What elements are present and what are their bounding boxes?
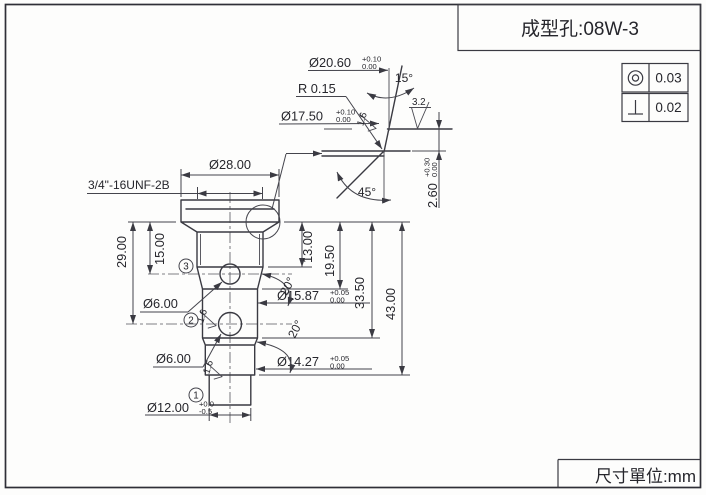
hole-top-dia-text: Ø6.00 — [143, 296, 178, 311]
dim-text-33-5: 33.50 — [352, 277, 367, 309]
taper-angle-text: 15° — [395, 71, 413, 85]
bore-lower-text: Ø14.27 — [277, 354, 319, 369]
gdt-frames: 0.03 0.02 — [622, 64, 688, 122]
detail-reference-lines — [324, 68, 446, 203]
finish-mark-upper: 1.6 — [194, 308, 219, 331]
dim-stem: Ø12.00 +0.0 -0.5 — [145, 400, 251, 422]
part-title: 成型孔:08W-3 — [521, 18, 639, 40]
concentricity-value: 0.03 — [655, 71, 681, 86]
bore-lower-tol-minus: 0.00 — [330, 362, 345, 371]
mouth-dia-text: Ø20.60 — [309, 55, 351, 70]
dim-text-15: 15.00 — [152, 233, 167, 265]
hole-bottom-dia-text: Ø6.00 — [156, 351, 191, 366]
callout-chamfer-angle: 45° — [337, 172, 391, 200]
unit-note: 尺寸單位:mm — [595, 467, 696, 486]
perpendicularity-icon — [628, 100, 643, 114]
fillet-radius-text: R 0.15 — [298, 81, 336, 96]
dim-text-13: 13.00 — [300, 231, 315, 263]
dim-thread: 3/4"-16UNF-2B — [87, 178, 263, 199]
concentricity-icon — [628, 71, 642, 85]
finish-mark-lower: 1.6 — [200, 359, 225, 382]
stem-tol-minus: -0.5 — [199, 407, 212, 416]
callout-hole-top: Ø6.00 — [140, 282, 222, 312]
dim-depth: 2.60 +0.30 0.00 — [423, 112, 441, 208]
callout-mouth-dia: Ø20.60 +0.10 0.00 — [308, 55, 388, 72]
bore-dia-text: Ø17.50 — [281, 109, 323, 124]
footer: 尺寸單位:mm — [558, 460, 701, 488]
finish-upper-value: 1.6 — [195, 308, 210, 325]
title-block: 成型孔:08W-3 — [458, 5, 701, 51]
callout-bore-lower: Ø14.27 +0.05 0.00 — [256, 354, 372, 371]
bore-dia-tol-minus: 0.00 — [336, 115, 351, 124]
chamfer-angle-text: 45° — [358, 185, 376, 199]
finish-mark-wall: 1.6 — [354, 111, 379, 134]
balloon-1: 1 — [189, 388, 203, 402]
bore-upper-tol-minus: 0.00 — [330, 296, 345, 305]
concentricity-icon — [632, 75, 638, 81]
depth-value: 2.60 — [425, 183, 440, 208]
dim-text-19-5: 19.50 — [322, 245, 337, 277]
finish-face-value: 3.2 — [412, 97, 426, 108]
leader-line — [188, 282, 222, 312]
thread-spec-text: 3/4"-16UNF-2B — [88, 178, 170, 192]
angle-arc — [367, 88, 414, 98]
stem-dia-text: Ø12.00 — [147, 400, 189, 415]
depth-text-group: 2.60 +0.30 0.00 — [423, 158, 441, 208]
detail-outline — [322, 66, 452, 198]
callout-taper-angle: 15° — [367, 71, 414, 98]
dim-text-29: 29.00 — [114, 236, 129, 268]
finish-lower-value: 1.6 — [201, 359, 216, 376]
depth-tol-minus: 0.00 — [430, 162, 439, 177]
finish-mark-face: 3.2 — [409, 97, 431, 129]
dim-flange-dia: Ø28.00 — [181, 157, 279, 197]
dim-text-flange-dia: Ø28.00 — [209, 157, 251, 172]
perpendicularity-value: 0.02 — [655, 100, 681, 115]
balloon-3-number: 3 — [183, 262, 189, 273]
balloon-3: 3 — [179, 259, 193, 273]
balloon-1-number: 1 — [193, 391, 198, 402]
dim-text-43: 43.00 — [383, 288, 398, 320]
detail-view: Ø20.60 +0.10 0.00 R 0.15 Ø17.50 +0.10 0.… — [279, 55, 452, 209]
chamfer-lower-angle: 20° — [285, 318, 306, 341]
engineering-drawing: 成型孔:08W-3 0.03 0.02 — [0, 0, 706, 495]
sheet-border — [6, 5, 701, 488]
balloon-2-number: 2 — [188, 316, 193, 327]
drawing-sheet: 成型孔:08W-3 0.03 0.02 — [0, 0, 706, 495]
mouth-dia-tol-minus: 0.00 — [362, 62, 377, 71]
